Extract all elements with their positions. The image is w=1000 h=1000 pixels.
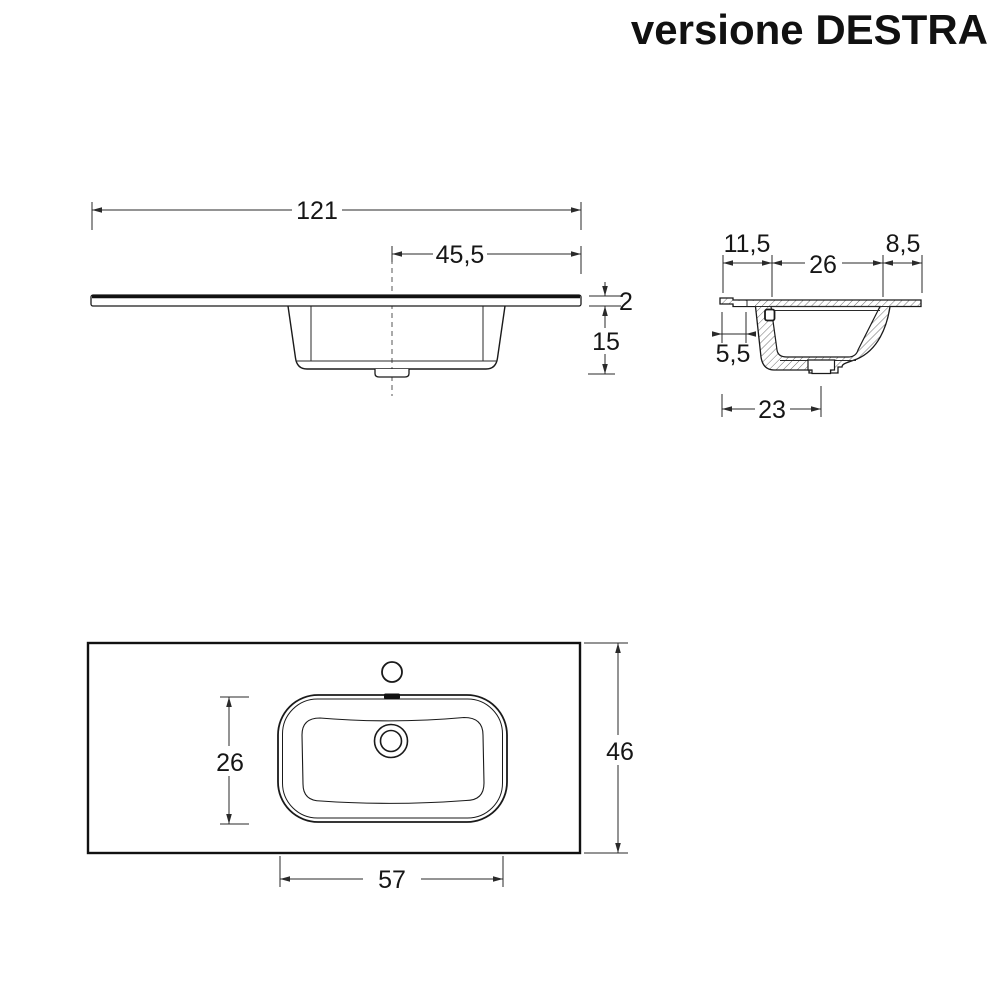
drain-inner	[381, 731, 402, 752]
dim-basin-width-label: 57	[378, 866, 406, 894]
drain-boss-front	[375, 369, 409, 377]
dim-thickness-and-depth: 2 15	[588, 282, 633, 374]
front-view: 121 45,5 2 15	[91, 196, 633, 396]
dim-basin-base-label: 23	[758, 396, 786, 424]
dim-tap-to-edge-label: 45,5	[436, 241, 485, 269]
dim-basin-inner-label: 26	[809, 251, 837, 279]
dim-overall-depth-label: 46	[606, 738, 634, 766]
dim-overall-width: 121	[92, 196, 581, 230]
drain-boss-section	[808, 360, 835, 374]
dim-depth-label: 15	[592, 328, 620, 356]
countertop-front-profile	[91, 295, 581, 306]
dim-front-lip: 5,5	[712, 312, 756, 368]
dim-depth-chain: 11,5 26 8,5	[723, 230, 922, 297]
basin-front-profile	[288, 306, 505, 377]
overflow-slot	[384, 694, 400, 700]
overflow-section-detail	[765, 310, 775, 321]
faucet-hole	[382, 662, 402, 682]
dim-back-edge-label: 8,5	[886, 230, 921, 258]
dim-basin-width: 57	[280, 856, 503, 894]
dim-front-lip-label: 5,5	[716, 340, 751, 368]
dim-thickness-label: 2	[619, 288, 633, 316]
dim-tap-to-edge: 45,5	[392, 240, 581, 274]
side-section-view: 11,5 26 8,5 5,5 23	[712, 230, 922, 424]
dim-overall-depth: 46	[584, 643, 638, 853]
dim-basin-base: 23	[722, 386, 821, 424]
dim-basin-depth-label: 26	[216, 749, 244, 777]
dim-front-edge-label: 11,5	[724, 230, 771, 258]
technical-drawing: 121 45,5 2 15	[0, 0, 1000, 1000]
basin-top-outline	[278, 694, 507, 823]
top-view: 26 46 57	[88, 643, 638, 894]
dim-overall-width-label: 121	[296, 197, 338, 225]
